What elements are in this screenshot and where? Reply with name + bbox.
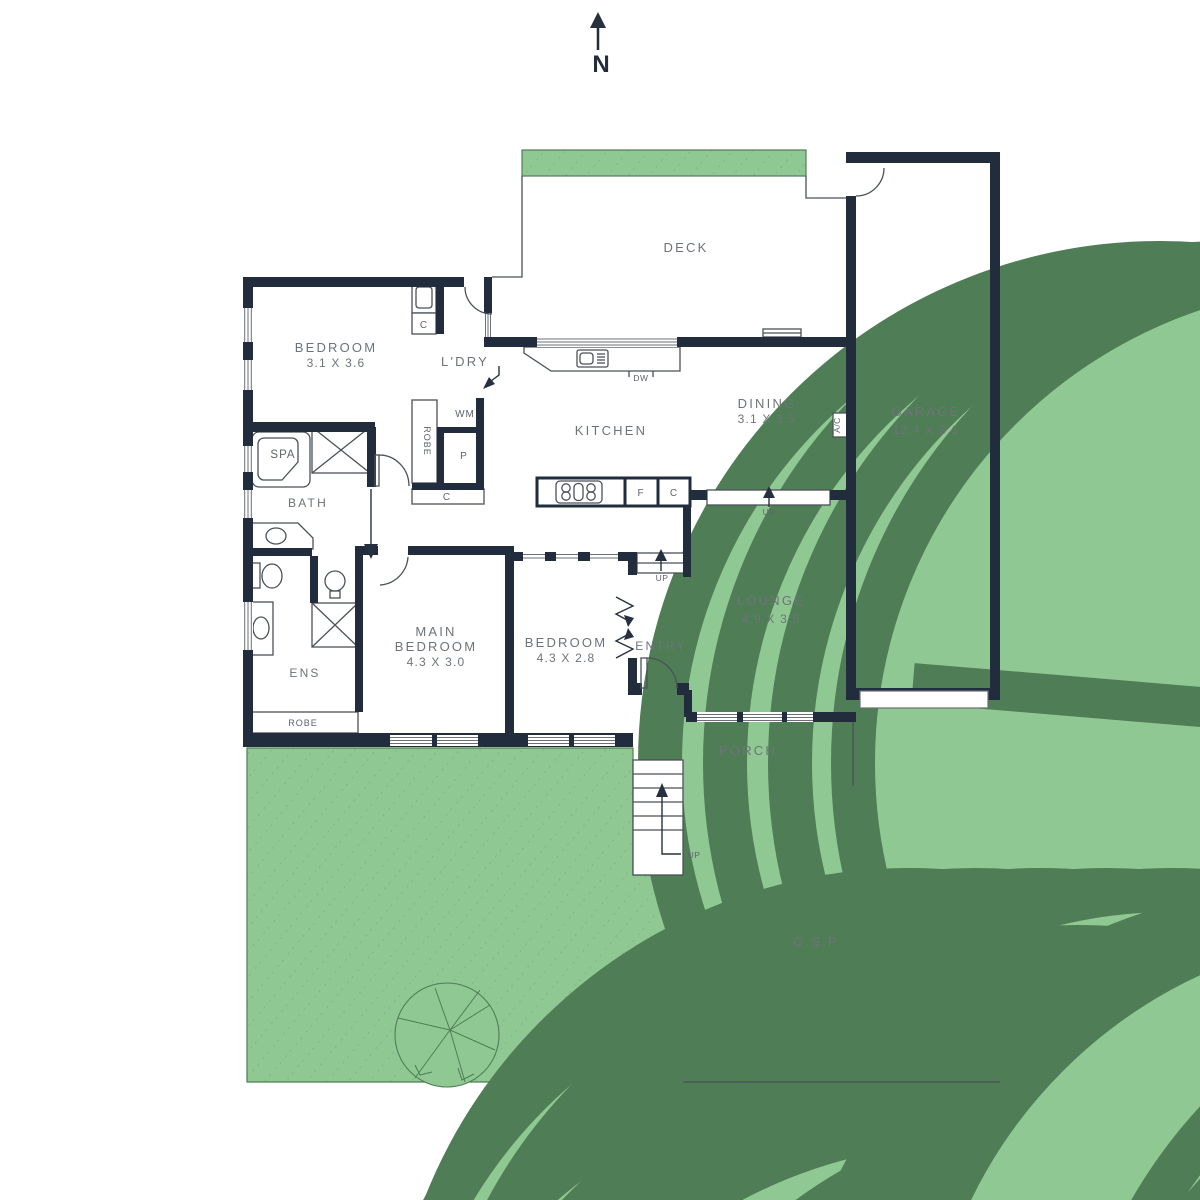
north-arrow: N xyxy=(590,12,610,78)
floorplan: DECK BEDROOM 3.1 X 3.6 L'DRY KITCHEN DIN… xyxy=(0,0,1200,1200)
entry-zigzag-arrow-upper xyxy=(616,597,634,627)
garage-nook xyxy=(806,176,846,198)
lounge-label: LOUNGE xyxy=(737,593,805,608)
garage-door-arc xyxy=(856,168,884,196)
window-left-2 xyxy=(243,360,253,390)
garage-dim: 12.4 X 3.1 xyxy=(893,423,960,437)
robe-main-label: ROBE xyxy=(288,718,318,728)
cupboard-hall-label: C xyxy=(443,492,451,503)
window-bedroom2-south xyxy=(528,735,615,746)
dining-dim: 3.1 X 3.5 xyxy=(738,412,797,426)
ens-toilet-bowl xyxy=(262,564,282,588)
wm-label: WM xyxy=(455,409,475,420)
lounge-dim: 4.9 X 3.5 xyxy=(742,612,801,626)
laundry-entry-arrow xyxy=(483,366,499,389)
up-kitchen-label: UP xyxy=(656,573,669,583)
window-main-bedroom-south xyxy=(390,735,478,746)
ens-label: ENS xyxy=(289,666,320,680)
cupboard-laundry-label: C xyxy=(420,320,428,331)
ens-pedestal-basin xyxy=(325,571,345,591)
windows-bedroom2-north xyxy=(523,552,618,561)
entry-zigzag-arrow-lower xyxy=(616,628,634,658)
robe-laundry-label: ROBE xyxy=(422,426,432,456)
porch-stairs xyxy=(633,760,683,875)
aircon-label: A/C xyxy=(832,417,842,433)
main-bedroom-label1: MAIN xyxy=(415,624,456,639)
up-stairs-label: UP xyxy=(688,850,701,860)
fridge-label: F xyxy=(637,488,644,499)
porch-label: PORCH xyxy=(719,743,777,758)
main-bedroom-door-arc xyxy=(380,557,408,585)
bedroom2-dim: 4.3 X 2.8 xyxy=(537,651,596,665)
landscaping xyxy=(247,150,1200,1200)
window-left-5 xyxy=(243,602,253,650)
window-left-4 xyxy=(243,490,253,518)
large-tree xyxy=(395,983,499,1087)
deck-label: DECK xyxy=(664,240,709,255)
window-kitchen-north xyxy=(537,337,677,347)
pantry-label: P xyxy=(460,451,468,462)
up-dining-label: UP xyxy=(763,507,776,517)
deck-boundary xyxy=(492,176,522,277)
deck-planter-strip xyxy=(522,150,806,176)
bedroom1-dim: 3.1 X 3.6 xyxy=(307,356,366,370)
floorplan-page: DECK BEDROOM 3.1 X 3.6 L'DRY KITCHEN DIN… xyxy=(0,0,1200,1200)
main-bedroom-label2: BEDROOM xyxy=(395,639,478,654)
window-left-1 xyxy=(243,308,253,342)
north-arrowhead xyxy=(590,12,606,28)
bath-label: BATH xyxy=(288,496,328,510)
garage-door xyxy=(860,691,988,708)
spa-label: SPA xyxy=(270,449,295,461)
cupboard-island-label: C xyxy=(670,488,678,499)
bedroom2-label: BEDROOM xyxy=(525,635,608,650)
osp-label: O.S.P xyxy=(793,934,839,949)
dining-label: DINING xyxy=(738,396,797,411)
entry-label: ENTRY xyxy=(635,639,686,653)
window-laundry-east xyxy=(484,313,492,337)
hall-arrow xyxy=(364,489,378,559)
laundry-label: L'DRY xyxy=(441,354,489,369)
kitchen-label: KITCHEN xyxy=(575,423,647,438)
north-letter: N xyxy=(592,51,609,78)
bedroom1-label: BEDROOM xyxy=(295,340,378,355)
dishwasher-label: DW xyxy=(633,373,648,383)
main-bedroom-dim: 4.3 X 3.0 xyxy=(407,655,466,669)
garage-label: GARAGE xyxy=(892,404,961,419)
island-bench xyxy=(537,478,690,506)
window-left-3 xyxy=(243,446,253,472)
bath-vanity xyxy=(252,523,313,549)
window-lounge-south xyxy=(697,712,813,722)
bedroom1-door xyxy=(375,455,409,486)
